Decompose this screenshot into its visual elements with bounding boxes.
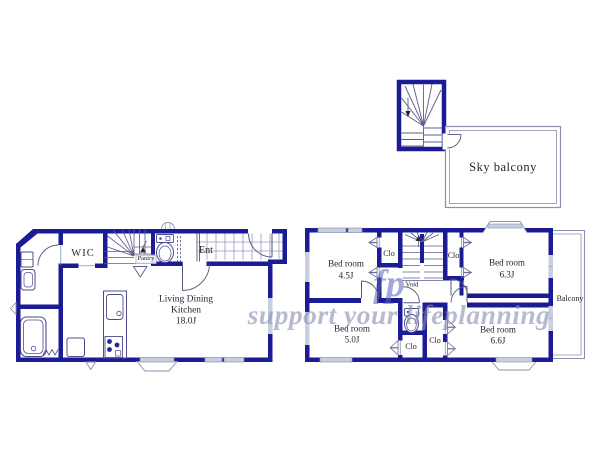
bedroom2-size: 6.3J (500, 271, 515, 280)
floorplan-drawing (0, 0, 600, 450)
bedroom4-size: 6.6J (491, 337, 506, 346)
washroom-door-arc (38, 245, 59, 266)
sky-stairwell (399, 82, 444, 149)
ent-label: Ent (199, 246, 213, 256)
f1-windows (11, 223, 273, 372)
ldk-size: 18.0J (176, 317, 196, 327)
balcony-label: Balcony (557, 295, 584, 303)
f1-toilet (157, 235, 181, 263)
wash-cabinet (21, 252, 33, 267)
closet2-label: Clo (448, 252, 460, 260)
wic-label: WIC (71, 249, 94, 260)
pantry-label: Pantry (136, 255, 157, 264)
bedroom2-label: Bed room (489, 259, 525, 268)
f2-toilet (405, 309, 419, 333)
ldk-label-line2: Kitchen (171, 306, 201, 316)
bedroom3-label: Bed room (334, 325, 370, 334)
kitchen-counter (104, 291, 127, 358)
f2-stairs (403, 233, 444, 281)
ldk-label-line1: Living Dining (159, 295, 213, 305)
f1-pantry-arrow (134, 267, 148, 278)
f1-square-fixture (67, 338, 85, 357)
closet1-label: Clo (383, 250, 395, 258)
closet4-label: Clo (429, 337, 441, 345)
sky-balcony-label: Sky balcony (469, 161, 537, 174)
washbasin (21, 270, 35, 291)
closet3-label: Clo (405, 343, 417, 351)
bedroom1-label: Bed room (328, 260, 364, 269)
floor-plan-canvas: Sky balcony WIC Ent Pantry Living Dining… (0, 0, 600, 450)
void-label: Void (405, 282, 418, 289)
bathtub (21, 317, 47, 357)
bedroom4-label: Bed room (480, 326, 516, 335)
bedroom3-size: 5.0J (345, 336, 360, 345)
bedroom1-size: 4.5J (339, 272, 354, 281)
f1-walls (16, 229, 287, 362)
ldk-door (183, 263, 210, 291)
